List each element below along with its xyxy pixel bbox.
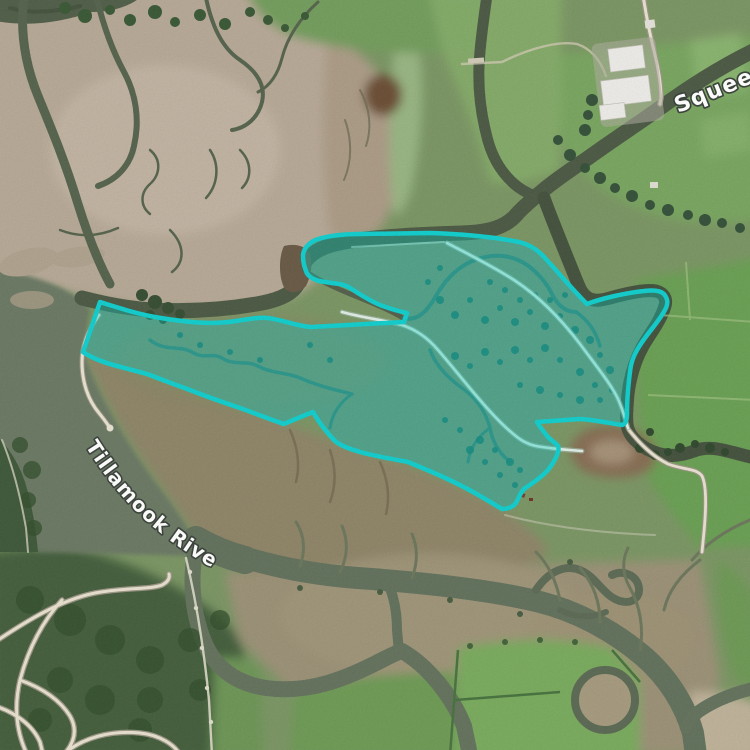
map-canvas[interactable]: Tillamook River Squeed <box>0 0 750 750</box>
grain-light <box>0 0 750 750</box>
satellite-map: Tillamook River Squeed <box>0 0 750 750</box>
